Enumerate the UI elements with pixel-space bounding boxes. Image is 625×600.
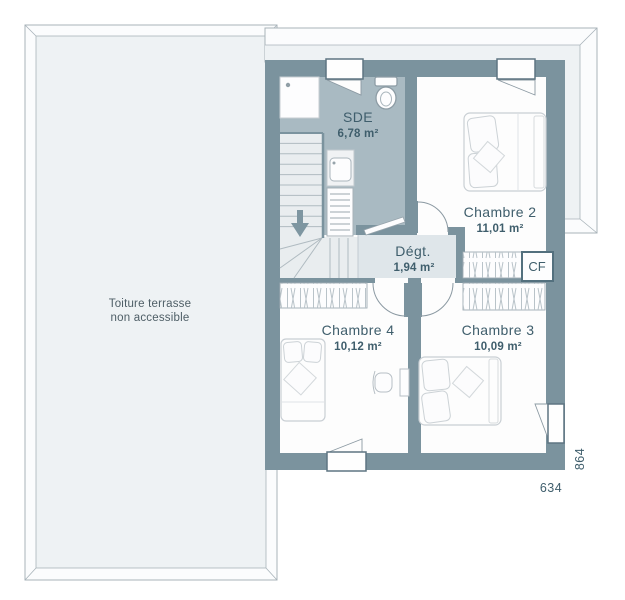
terrace-label-line1: Toiture terrasse xyxy=(109,298,191,310)
label-sde-area: 6,78 m² xyxy=(337,128,378,140)
label-chambre3-area: 10,09 m² xyxy=(474,341,522,353)
dimension-horizontal: 634 xyxy=(540,481,562,495)
label-chambre2-name: Chambre 2 xyxy=(464,204,537,220)
bed-chambre3-icon xyxy=(419,357,501,425)
wall-stub-chambre2 xyxy=(448,227,465,235)
window-chambre2 xyxy=(497,59,535,79)
wardrobe-chambre2-icon xyxy=(463,252,522,278)
label-chambre4-name: Chambre 4 xyxy=(322,322,395,338)
shower-icon xyxy=(280,77,319,118)
wall-mid-left xyxy=(265,278,375,283)
label-chambre3-name: Chambre 3 xyxy=(462,322,535,338)
wardrobe-chambre4-icon xyxy=(280,283,367,308)
window-chambre3 xyxy=(548,404,564,443)
sink-icon xyxy=(327,150,354,186)
label-sde-name: SDE xyxy=(343,109,373,125)
flue-label: CF xyxy=(528,259,545,274)
label-chambre4-area: 10,12 m² xyxy=(334,341,382,353)
window-chambre4 xyxy=(327,452,366,471)
label-degagement-area: 1,94 m² xyxy=(393,262,434,274)
floor-plan: Toiture terrasse non accessible xyxy=(0,0,625,600)
label-degagement-name: Dégt. xyxy=(395,243,430,259)
shower-head-icon xyxy=(286,83,290,87)
bed-chambre2-icon xyxy=(464,113,546,191)
label-chambre2-area: 11,01 m² xyxy=(477,223,524,235)
window-sde xyxy=(326,59,363,79)
bed-chambre4-icon xyxy=(281,339,325,421)
wardrobe-chambre3-icon xyxy=(463,283,545,310)
roof-terrace: Toiture terrasse non accessible xyxy=(25,25,277,580)
desk-icon xyxy=(400,369,409,396)
dimension-vertical: 864 xyxy=(573,448,587,470)
towel-radiator-icon xyxy=(327,188,353,236)
toilet-icon xyxy=(375,77,397,109)
wall-mid-center xyxy=(408,278,421,283)
terrace-label-line2: non accessible xyxy=(111,312,190,324)
